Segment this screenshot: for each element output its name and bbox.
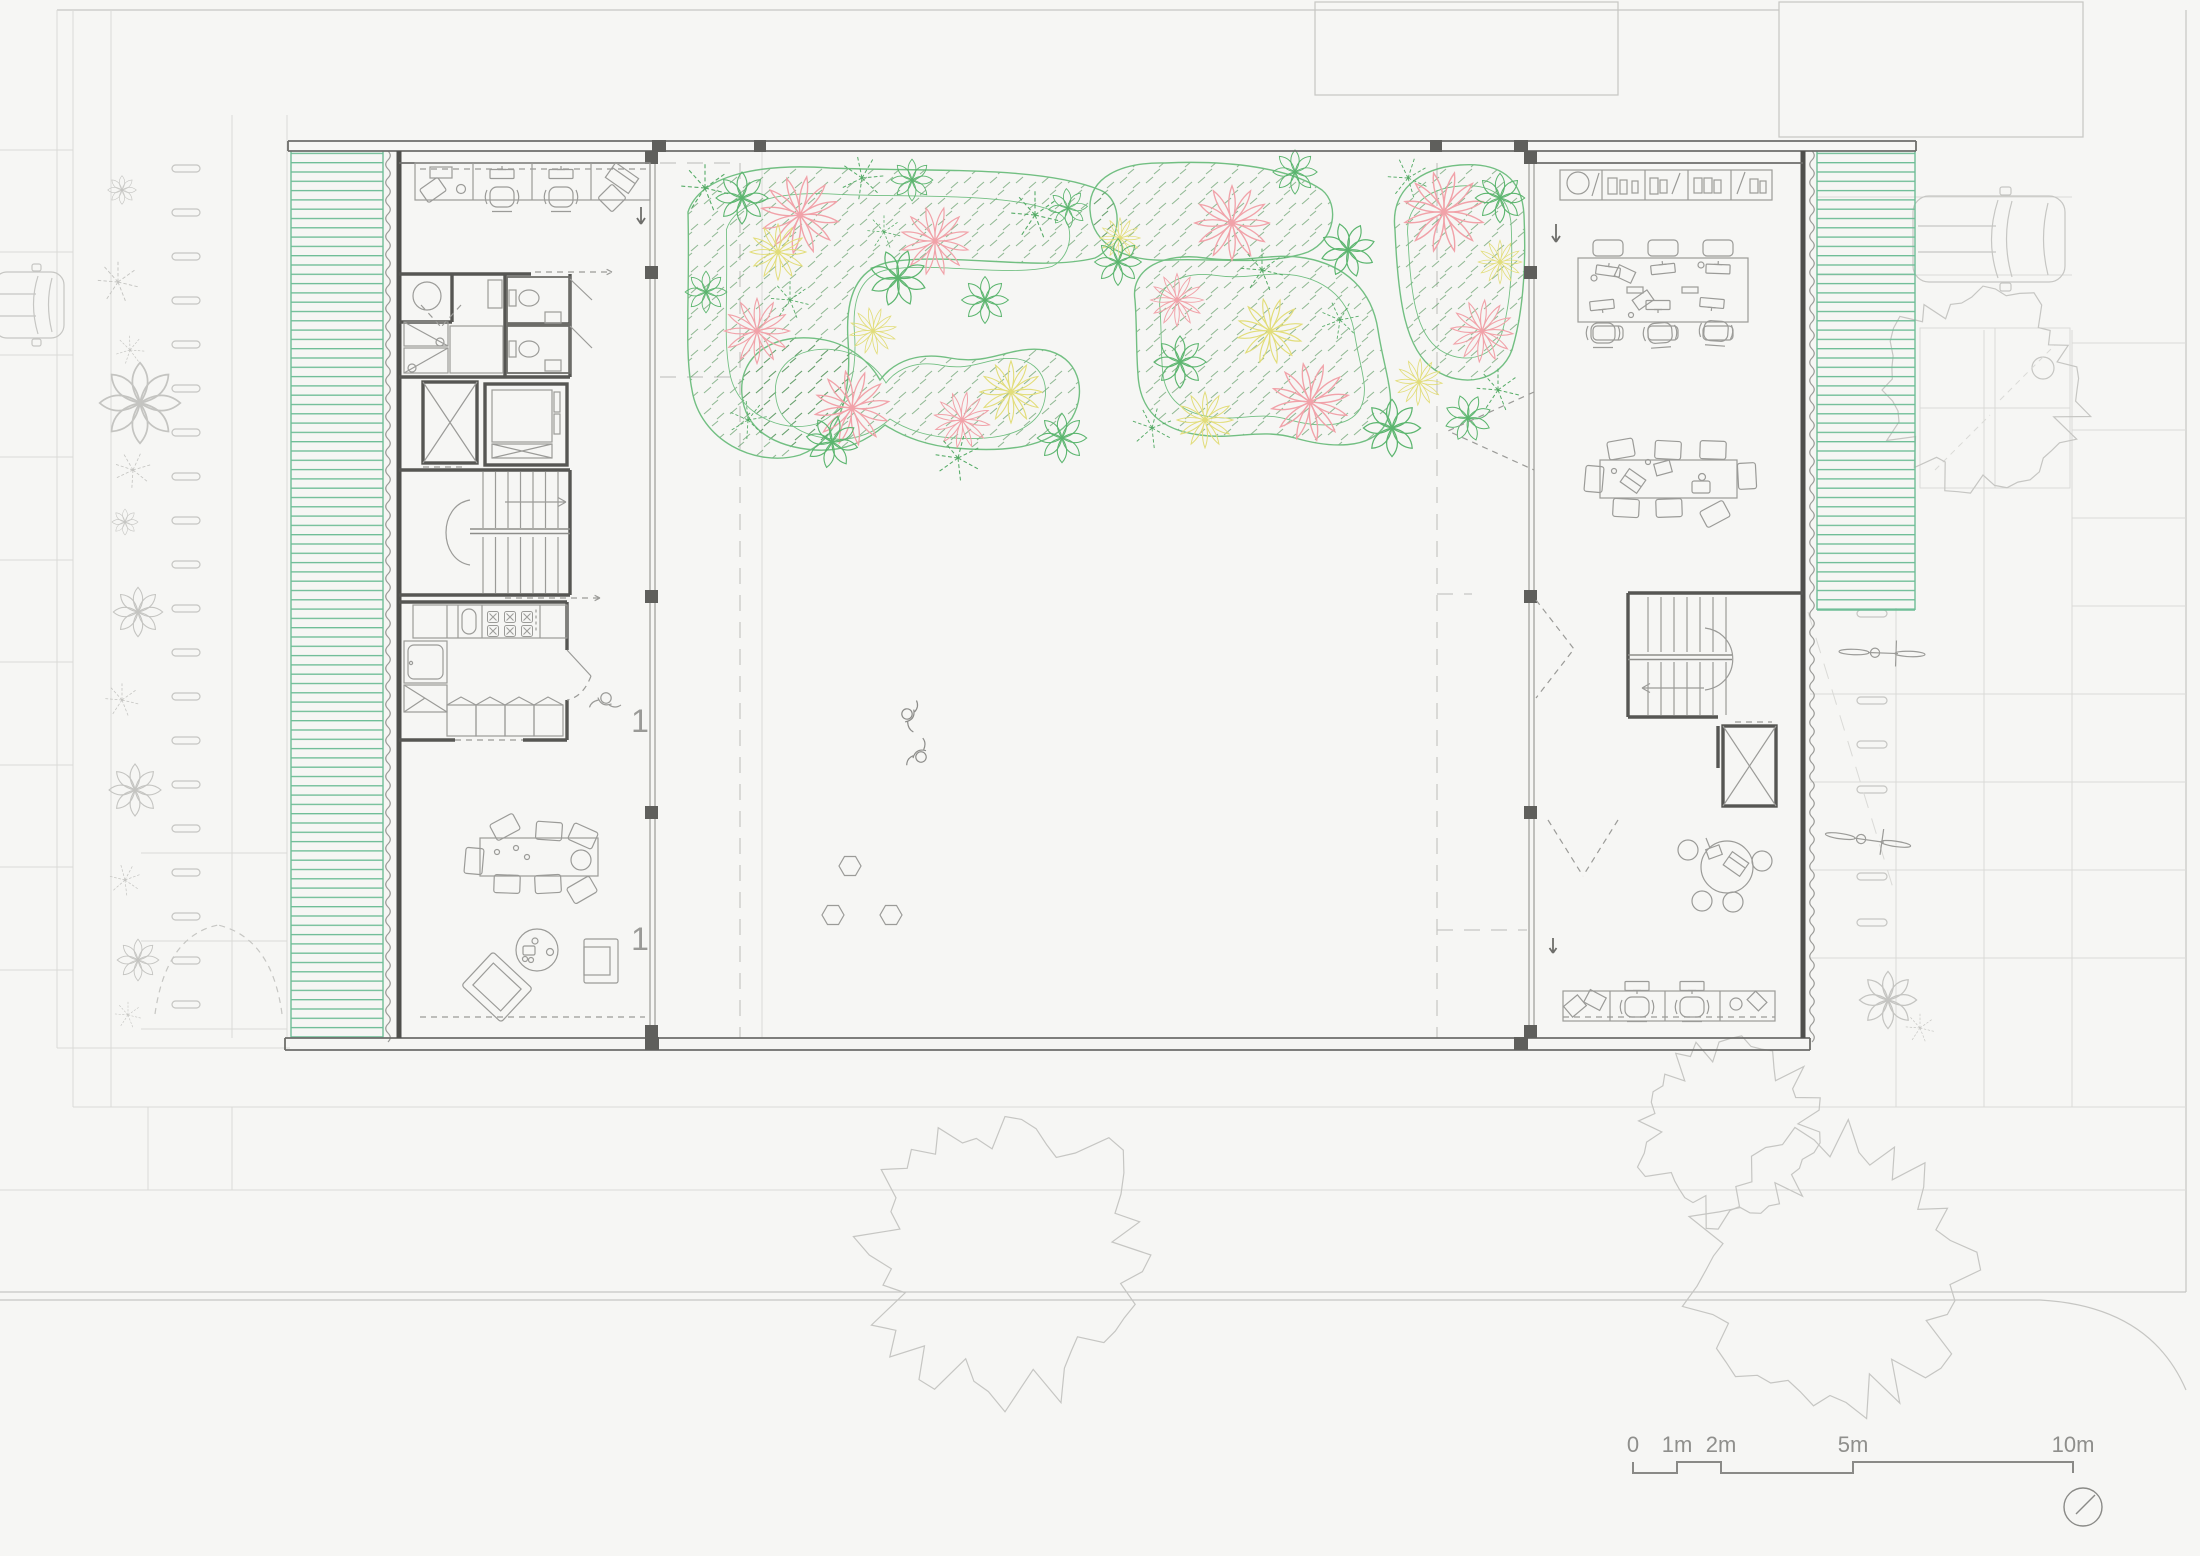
- core-right: [1718, 722, 1776, 806]
- person-figure: [899, 738, 933, 770]
- bicycle-icon: [1839, 639, 1926, 668]
- room-label-lounge: 1: [631, 921, 649, 957]
- shelf-unit: [1560, 170, 1772, 200]
- entry-arrow-icon: [1550, 938, 1557, 953]
- stair-direction-arrow: [1642, 684, 1704, 693]
- louver-strip-east: [1817, 151, 1915, 610]
- entry-arrow-icon: [637, 207, 645, 224]
- scale-label-5m: 5m: [1838, 1432, 1869, 1457]
- plan-drawing: 1 1 0 1m 2m 5m 10m: [0, 0, 2200, 1556]
- neighbor-building-north: [1315, 2, 1618, 95]
- right-wing-glazing-west: [1524, 151, 1537, 1038]
- stair-left: [399, 470, 570, 595]
- scale-label-10m: 10m: [2052, 1432, 2095, 1457]
- louver-strip-west: [291, 151, 383, 1038]
- scale-label-2m: 2m: [1706, 1432, 1737, 1457]
- green-facade-wavy-east: [1810, 151, 1815, 1042]
- neighbor-building-northeast: [1779, 2, 2083, 137]
- kitchen-door-leaf: [567, 650, 591, 676]
- planting-strip-west: [97, 176, 181, 1028]
- plant-southeast: [1905, 1013, 1935, 1042]
- left-wing-glazing-east: [645, 151, 658, 1038]
- hexagon-pavers: [822, 857, 902, 925]
- stair-direction-arrow: [505, 498, 566, 507]
- parking-wheel-stops: [172, 165, 200, 1008]
- meeting-table: [1584, 438, 1757, 528]
- person-figure: [589, 689, 623, 719]
- round-table-group: [1678, 838, 1772, 912]
- kitchen: [399, 594, 623, 740]
- person-figure: [896, 698, 929, 733]
- road-edges-west: [57, 10, 287, 1107]
- armchair: [462, 952, 533, 1022]
- scale-bar: 0 1m 2m 5m 10m: [1627, 1432, 2102, 1526]
- desk-row-south: [1563, 982, 1775, 1022]
- basin: [413, 282, 441, 310]
- slide-door-arrow: [535, 268, 612, 276]
- door-swing-pair: [1548, 820, 1618, 876]
- folding-door-swing: [1536, 600, 1574, 698]
- people-in-courtyard: [896, 698, 933, 770]
- courtyard: [660, 147, 1527, 1038]
- lounge: [420, 813, 645, 1022]
- office-desk-row: [415, 163, 650, 213]
- wc-door-leaves: [570, 279, 592, 348]
- wall-band-south: [285, 1037, 1810, 1050]
- tree-canopy-south: [1682, 1120, 1980, 1419]
- left-wing-interior: [399, 163, 650, 1023]
- wall-band-north: [288, 140, 1916, 152]
- tree-pit-northeast: [1920, 328, 2070, 488]
- garden-bed: [742, 338, 1080, 450]
- core-left: [423, 382, 567, 467]
- counter: [450, 326, 503, 373]
- plant-southeast: [1859, 971, 1916, 1028]
- coffee-table: [516, 929, 558, 971]
- double-door-swing: [1448, 392, 1534, 470]
- north-arrow-icon: [2064, 1488, 2102, 1526]
- scale-label-1m: 1m: [1662, 1432, 1693, 1457]
- architectural-floor-plan: 1 1 0 1m 2m 5m 10m: [0, 0, 2200, 1556]
- tree-canopy-south: [1638, 1036, 1821, 1229]
- stair-right: [1628, 593, 1803, 717]
- garden-bed: [1135, 256, 1391, 445]
- cabinet: [488, 280, 502, 308]
- armchair: [584, 939, 618, 983]
- elevator: [485, 384, 567, 465]
- bike-parking-east: [1808, 610, 1935, 1042]
- parking-stall-lines-inner: [141, 853, 287, 1029]
- bicycle-icon: [1824, 821, 1913, 859]
- scale-label-0: 0: [1627, 1432, 1639, 1457]
- entry-arrow-icon: [1552, 224, 1560, 242]
- desk-island: [1578, 240, 1748, 349]
- tree-canopy-south: [853, 1117, 1151, 1412]
- service-block: [399, 274, 592, 377]
- parking-stall-lines-west: [0, 150, 73, 970]
- car-west: [0, 264, 64, 346]
- green-facade-wavy-west: [386, 151, 391, 1042]
- shower-cells: [404, 322, 448, 373]
- room-label-kitchen: 1: [631, 703, 649, 739]
